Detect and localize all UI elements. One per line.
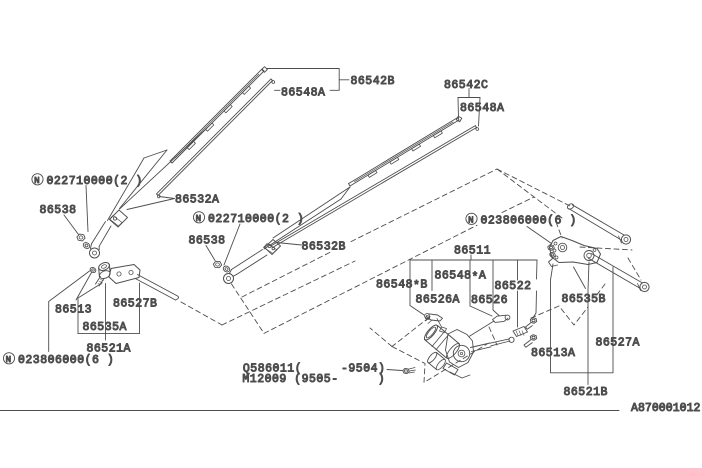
svg-text:86532B: 86532B	[302, 241, 346, 254]
svg-text:86542B: 86542B	[351, 75, 395, 88]
svg-text:N: N	[196, 213, 202, 224]
svg-text:86527B: 86527B	[113, 297, 157, 310]
svg-text:86526A: 86526A	[416, 294, 460, 307]
svg-text:022710000(2 ): 022710000(2 )	[208, 213, 304, 226]
svg-text:023806000(6 ): 023806000(6 )	[481, 215, 577, 228]
svg-text:86521B: 86521B	[564, 386, 608, 399]
svg-text:023806000(6 ): 023806000(6 )	[18, 354, 114, 367]
svg-text:86527A: 86527A	[596, 337, 640, 350]
svg-text:86511: 86511	[454, 244, 491, 257]
svg-text:86538: 86538	[40, 204, 77, 217]
svg-text:N: N	[34, 175, 40, 186]
svg-text:022710000(2 ): 022710000(2 )	[47, 175, 143, 188]
svg-text:): )	[378, 373, 385, 386]
svg-text:A870001012: A870001012	[631, 402, 701, 415]
svg-text:86513: 86513	[55, 303, 92, 316]
svg-text:86548A: 86548A	[281, 86, 325, 99]
svg-text:86548*A: 86548*A	[435, 270, 487, 285]
svg-text:N: N	[6, 354, 12, 365]
svg-text:86542C: 86542C	[444, 79, 488, 92]
svg-text:86522: 86522	[495, 280, 532, 293]
svg-text:86548*B: 86548*B	[376, 278, 428, 293]
svg-text:86535A: 86535A	[83, 321, 127, 334]
svg-text:86513A: 86513A	[531, 347, 575, 360]
svg-text:N: N	[468, 214, 474, 225]
svg-text:86526: 86526	[471, 294, 508, 307]
svg-text:M12009 (9505-: M12009 (9505-	[242, 373, 338, 386]
svg-text:86538: 86538	[189, 235, 226, 248]
svg-text:86532A: 86532A	[175, 194, 219, 207]
svg-text:86535B: 86535B	[562, 293, 606, 306]
svg-text:86548A: 86548A	[460, 102, 504, 115]
